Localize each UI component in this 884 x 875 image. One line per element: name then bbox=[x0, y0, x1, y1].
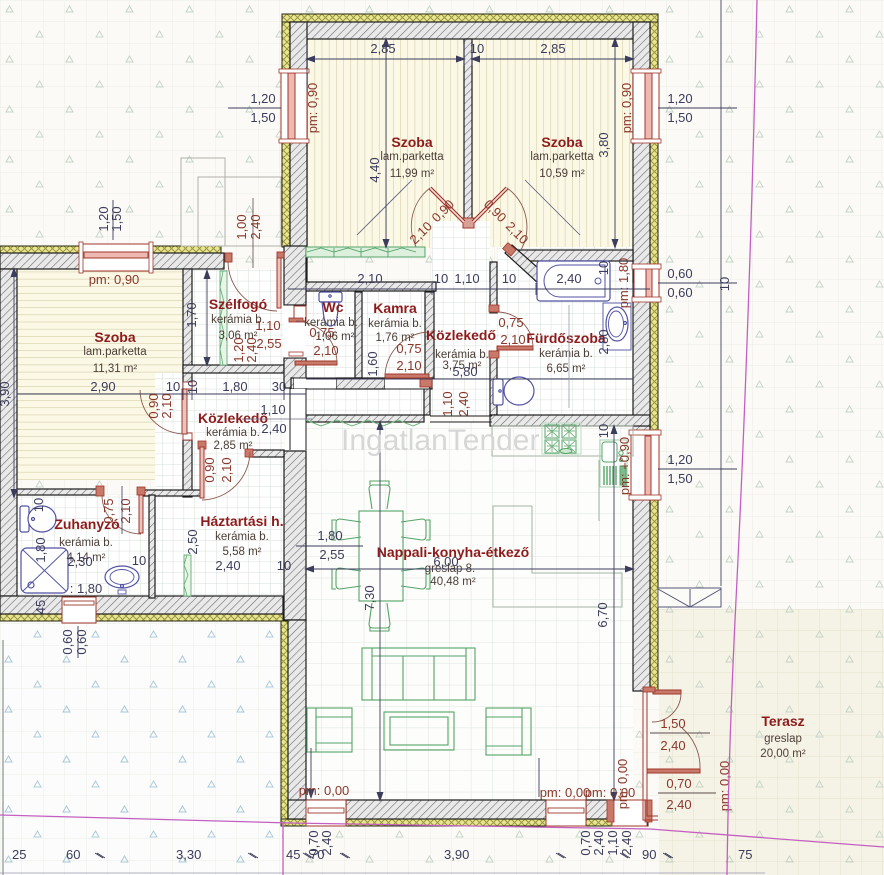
svg-text:3,30: 3,30 bbox=[176, 847, 201, 862]
svg-text:pm: 0,90: pm: 0,90 bbox=[619, 83, 634, 134]
svg-text:10: 10 bbox=[31, 498, 46, 512]
svg-text:greslap: greslap bbox=[764, 733, 802, 745]
svg-text:2,40: 2,40 bbox=[660, 738, 685, 753]
svg-text:Szoba: Szoba bbox=[541, 134, 582, 150]
svg-text:20,00 m²: 20,00 m² bbox=[760, 748, 806, 760]
svg-text:11,99 m²: 11,99 m² bbox=[390, 168, 435, 180]
svg-text:0,60: 0,60 bbox=[60, 629, 75, 654]
svg-text:10: 10 bbox=[434, 271, 448, 286]
svg-text:IngatlanTender: IngatlanTender bbox=[341, 424, 540, 457]
svg-text:10: 10 bbox=[596, 261, 611, 275]
svg-text:2,40: 2,40 bbox=[215, 558, 240, 573]
svg-text:10: 10 bbox=[596, 424, 611, 438]
svg-text:1,10: 1,10 bbox=[260, 402, 285, 417]
svg-text:60: 60 bbox=[66, 847, 80, 862]
svg-text:1,10: 1,10 bbox=[255, 318, 280, 333]
svg-text:2,10: 2,10 bbox=[500, 332, 525, 347]
svg-text:1,20: 1,20 bbox=[667, 452, 692, 467]
svg-text:Közlekedő: Közlekedő bbox=[198, 410, 268, 426]
svg-text:10: 10 bbox=[717, 277, 732, 291]
svg-text:0,60: 0,60 bbox=[667, 285, 692, 300]
svg-text:1,20: 1,20 bbox=[250, 91, 275, 106]
svg-text:30: 30 bbox=[272, 379, 286, 394]
svg-text:Terasz: Terasz bbox=[761, 713, 804, 729]
svg-text:10: 10 bbox=[185, 380, 200, 394]
svg-text:2,10: 2,10 bbox=[118, 498, 133, 523]
svg-text:45: 45 bbox=[33, 600, 48, 614]
svg-text:1,80: 1,80 bbox=[222, 379, 247, 394]
svg-text:Szoba: Szoba bbox=[94, 329, 135, 345]
svg-text:Háztartási h.: Háztartási h. bbox=[200, 513, 283, 529]
svg-text:2,40: 2,40 bbox=[556, 271, 581, 286]
svg-text:1,00: 1,00 bbox=[234, 214, 249, 239]
svg-text:1,20: 1,20 bbox=[667, 91, 692, 106]
svg-text:0,75: 0,75 bbox=[498, 315, 523, 330]
svg-text:10: 10 bbox=[132, 553, 146, 568]
svg-text:2,85: 2,85 bbox=[540, 41, 565, 56]
svg-text:: 1,80: : 1,80 bbox=[70, 581, 103, 596]
svg-text:2,10: 2,10 bbox=[159, 393, 174, 418]
svg-text:0,70: 0,70 bbox=[666, 776, 691, 791]
svg-text:2,10: 2,10 bbox=[357, 271, 382, 286]
svg-text:2,10: 2,10 bbox=[219, 457, 234, 482]
svg-text:2,40: 2,40 bbox=[619, 830, 634, 855]
svg-text:1,80: 1,80 bbox=[33, 537, 48, 562]
svg-text:2,85 m²: 2,85 m² bbox=[214, 440, 253, 452]
svg-text:5,58 m²: 5,58 m² bbox=[223, 546, 262, 558]
svg-text:pm: 1,80: pm: 1,80 bbox=[616, 258, 631, 309]
svg-text:Szoba: Szoba bbox=[391, 134, 432, 150]
svg-text:1,50: 1,50 bbox=[667, 110, 692, 125]
svg-text:kerámia b.: kerámia b. bbox=[215, 531, 269, 543]
svg-text:lam.parketta: lam.parketta bbox=[530, 151, 594, 163]
svg-text:3,90: 3,90 bbox=[0, 381, 12, 406]
svg-text:kerámia b.: kerámia b. bbox=[368, 318, 422, 330]
svg-text:10: 10 bbox=[502, 271, 516, 286]
svg-text:25: 25 bbox=[12, 847, 26, 862]
svg-text:1,80: 1,80 bbox=[317, 528, 342, 543]
svg-text:1,50: 1,50 bbox=[660, 716, 685, 731]
svg-text:0,90: 0,90 bbox=[202, 457, 217, 482]
svg-text:pm: 0,90: pm: 0,90 bbox=[305, 83, 320, 134]
svg-text:0,75: 0,75 bbox=[101, 498, 116, 523]
svg-text:2,30: 2,30 bbox=[67, 554, 92, 569]
svg-text:40,48 m²: 40,48 m² bbox=[430, 576, 476, 588]
svg-text:1,10: 1,10 bbox=[440, 391, 455, 416]
svg-text:2,10: 2,10 bbox=[396, 358, 421, 373]
svg-text:1,60: 1,60 bbox=[365, 351, 380, 376]
svg-text:3,80: 3,80 bbox=[596, 132, 611, 157]
svg-text:Közlekedő: Közlekedő bbox=[426, 327, 496, 343]
svg-text:kerámia b.: kerámia b. bbox=[206, 427, 260, 439]
svg-text:1,50: 1,50 bbox=[250, 110, 275, 125]
svg-text:3,75 m²: 3,75 m² bbox=[443, 360, 482, 372]
svg-text:kerámia b.: kerámia b. bbox=[539, 348, 593, 360]
svg-text:pm: 0,90: pm: 0,90 bbox=[89, 272, 140, 287]
svg-text:Fürdőszoba: Fürdőszoba bbox=[526, 330, 606, 346]
svg-text:1,70: 1,70 bbox=[184, 302, 199, 327]
svg-text:2,40: 2,40 bbox=[666, 797, 691, 812]
svg-text:lam.parketta: lam.parketta bbox=[83, 346, 147, 358]
svg-text:10: 10 bbox=[277, 558, 291, 573]
svg-text:1,50: 1,50 bbox=[109, 206, 124, 231]
svg-text:90: 90 bbox=[642, 847, 656, 862]
svg-text:pm: 0,00: pm: 0,00 bbox=[299, 783, 350, 798]
svg-text:pm: +0,90: pm: +0,90 bbox=[617, 437, 632, 495]
svg-text:45: 45 bbox=[286, 847, 300, 862]
svg-text:pm: 0,00: pm: 0,00 bbox=[615, 759, 630, 810]
svg-text:11,31 m²: 11,31 m² bbox=[93, 363, 138, 375]
svg-text:2,50: 2,50 bbox=[185, 529, 200, 554]
svg-text:10,59 m²: 10,59 m² bbox=[539, 168, 585, 180]
svg-text:lam.parketta: lam.parketta bbox=[380, 151, 444, 163]
svg-text:kerámia b.: kerámia b. bbox=[59, 537, 113, 549]
svg-text:6,65 m²: 6,65 m² bbox=[547, 363, 586, 375]
svg-text:2,40: 2,40 bbox=[591, 830, 606, 855]
svg-text:10: 10 bbox=[470, 41, 484, 56]
svg-text:2,40: 2,40 bbox=[248, 214, 263, 239]
svg-text:0,75: 0,75 bbox=[396, 341, 421, 356]
svg-text:2,10: 2,10 bbox=[313, 343, 338, 358]
svg-text:2,85: 2,85 bbox=[370, 41, 395, 56]
svg-text:7,30: 7,30 bbox=[362, 585, 377, 610]
svg-text:Wc: Wc bbox=[323, 299, 344, 315]
svg-text:1,50: 1,50 bbox=[667, 471, 692, 486]
svg-text:2,80: 2,80 bbox=[596, 329, 611, 354]
svg-text:2,55: 2,55 bbox=[319, 547, 344, 562]
svg-text:70: 70 bbox=[310, 847, 324, 862]
svg-text:0,75: 0,75 bbox=[309, 325, 334, 340]
svg-text:1,10: 1,10 bbox=[454, 271, 479, 286]
svg-text:pm: 0,00: pm: 0,00 bbox=[540, 785, 591, 800]
svg-text:75: 75 bbox=[738, 847, 752, 862]
svg-text:10: 10 bbox=[166, 379, 180, 394]
svg-text:2,55: 2,55 bbox=[256, 336, 281, 351]
svg-text:6,00: 6,00 bbox=[433, 554, 458, 569]
svg-text:6,70: 6,70 bbox=[595, 602, 610, 627]
svg-text:2,40: 2,40 bbox=[456, 391, 471, 416]
svg-text:2,40: 2,40 bbox=[244, 337, 259, 362]
svg-text:Kamra: Kamra bbox=[373, 300, 417, 316]
svg-text:2,90: 2,90 bbox=[90, 379, 115, 394]
svg-text:3,90: 3,90 bbox=[444, 847, 469, 862]
svg-text:2,40: 2,40 bbox=[261, 421, 286, 436]
svg-text:Szélfogó: Szélfogó bbox=[209, 296, 267, 312]
svg-text:1,10: 1,10 bbox=[605, 830, 620, 855]
svg-text:0,60: 0,60 bbox=[74, 629, 89, 654]
svg-text:0,60: 0,60 bbox=[667, 266, 692, 281]
